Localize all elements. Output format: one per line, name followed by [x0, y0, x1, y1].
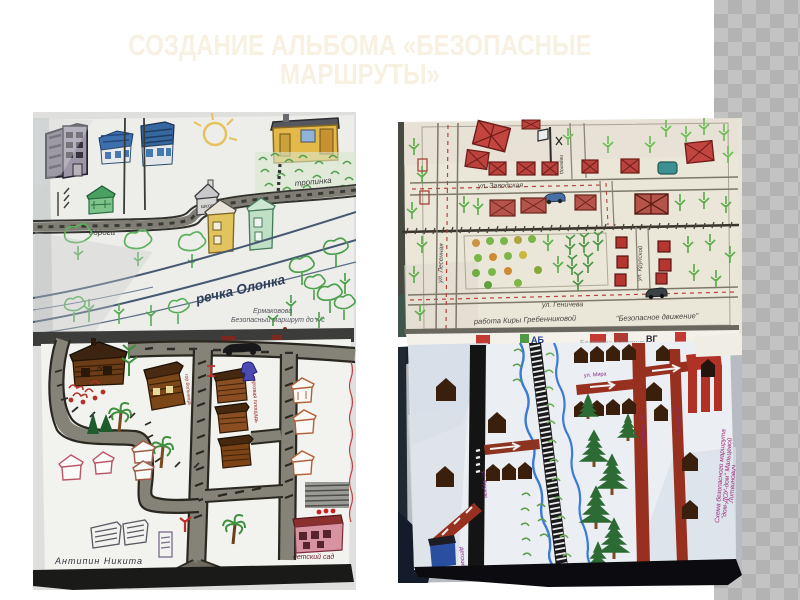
svg-text:дом: дом [97, 365, 110, 373]
svg-text:ул. Крупской: ул. Крупской [636, 245, 644, 282]
svg-text:ул. Лесенная: ул. Лесенная [437, 243, 445, 284]
svg-text:детский сад: детский сад [293, 553, 334, 561]
svg-text:ул. Геничева: ул. Геничева [541, 301, 584, 309]
svg-text:Антипин Никита: Антипин Никита [54, 556, 143, 566]
svg-text:ул. Заводская: ул. Заводская [477, 181, 524, 190]
svg-text:Ермаковова: Ермаковова [253, 308, 292, 315]
svg-text:Безопасный маршрут до я/с: Безопасный маршрут до я/с [231, 316, 325, 324]
svg-text:переход: переход [558, 155, 565, 174]
svg-text:дорога: дорога [89, 228, 116, 237]
